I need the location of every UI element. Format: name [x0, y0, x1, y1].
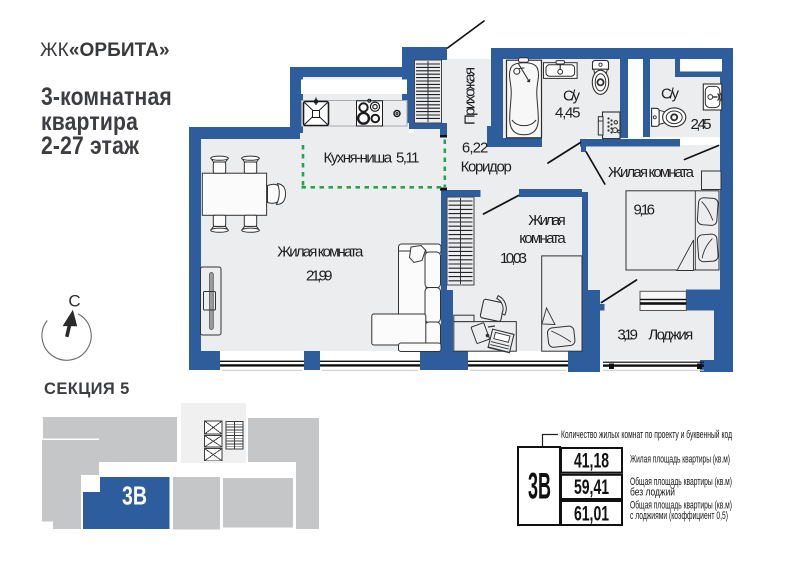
- svg-text:Жилая комната: Жилая комната: [277, 243, 364, 260]
- svg-text:10,03: 10,03: [500, 250, 527, 267]
- svg-text:3,19: 3,19: [617, 326, 638, 343]
- svg-text:с лоджиями (коэффициент 0,5): с лоджиями (коэффициент 0,5): [630, 510, 728, 522]
- svg-text:61,01: 61,01: [574, 501, 609, 525]
- svg-text:Жилая площадь квартиры (кв.м): Жилая площадь квартиры (кв.м): [630, 454, 730, 466]
- svg-text:6,22: 6,22: [462, 139, 489, 156]
- svg-text:41,18: 41,18: [574, 449, 609, 473]
- svg-text:Жилая: Жилая: [528, 212, 566, 229]
- svg-text:Лоджия: Лоджия: [648, 326, 693, 343]
- svg-text:Коридор: Коридор: [461, 159, 512, 176]
- svg-text:9,16: 9,16: [634, 201, 656, 218]
- svg-text:59,41: 59,41: [574, 475, 609, 499]
- svg-text:комната: комната: [519, 230, 566, 247]
- svg-text:3В: 3В: [528, 466, 551, 507]
- svg-text:Количество жилых комнат по про: Количество жилых комнат по проекту и бук…: [561, 429, 732, 441]
- svg-text:без лоджий: без лоджий: [630, 487, 675, 499]
- svg-text:2,45: 2,45: [691, 116, 712, 133]
- svg-text:С/у: С/у: [563, 87, 581, 104]
- svg-text:Прихожая: Прихожая: [461, 67, 478, 125]
- svg-text:С/у: С/у: [661, 86, 680, 103]
- svg-text:4,45: 4,45: [555, 104, 581, 121]
- svg-text:Жилая комната: Жилая комната: [608, 164, 695, 181]
- svg-text:21,99: 21,99: [306, 268, 333, 285]
- svg-text:Кухня-ниша 5,11: Кухня-ниша 5,11: [324, 150, 420, 167]
